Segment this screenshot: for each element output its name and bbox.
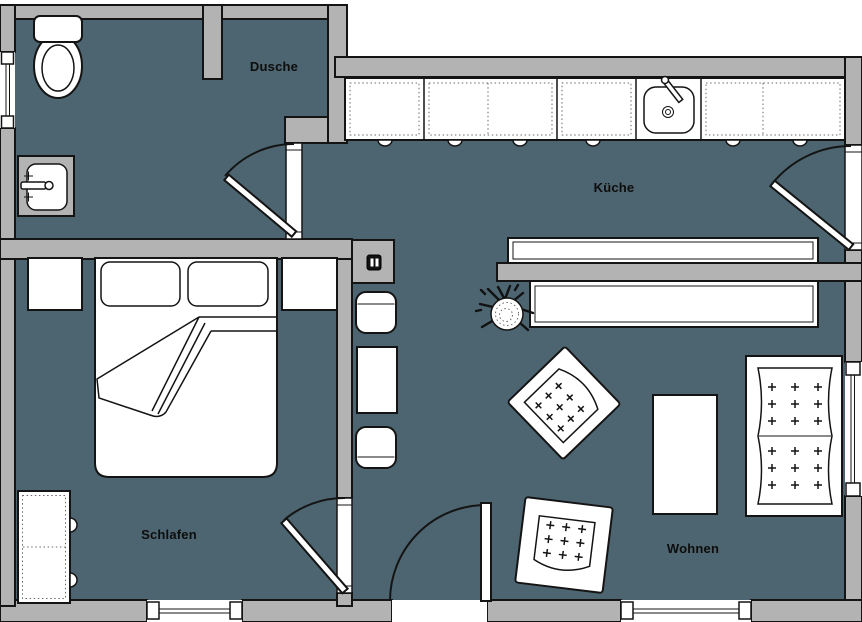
- wall-bedroom-top: [0, 239, 352, 259]
- room-label-schlafen: Schlafen: [141, 527, 197, 542]
- window-bottom-2: [621, 600, 751, 622]
- window-right: [845, 362, 862, 496]
- nightstand-left: [28, 258, 82, 310]
- window-jamb: [2, 116, 14, 128]
- faucet: [21, 182, 46, 189]
- wall-shower-partition: [203, 5, 222, 79]
- room-label-kueche: Küche: [594, 180, 635, 195]
- kitchen-counter: [508, 238, 818, 263]
- window-jamb: [739, 602, 751, 619]
- pillow: [188, 262, 268, 306]
- wall-bedroom-right-lower: [337, 593, 352, 606]
- window-jamb: [846, 362, 860, 375]
- floor-plan: Dusche Küche Schlafen Wohnen: [0, 0, 862, 622]
- window-bottom-1: [147, 600, 242, 622]
- sofa: [746, 356, 842, 516]
- wall-kitchen-top: [335, 57, 862, 77]
- sideboard: [530, 281, 818, 327]
- wall-bath-step: [285, 117, 332, 143]
- wall-bottom-4: [751, 600, 862, 622]
- wall-half-kitchen: [497, 263, 862, 281]
- wall-bottom-2: [242, 600, 392, 622]
- room-label-dusche: Dusche: [250, 59, 298, 74]
- coffee-table: [653, 395, 717, 514]
- window-jamb: [846, 483, 860, 496]
- kitchen-cabinet-run: [345, 77, 845, 147]
- nightstand-right: [282, 258, 337, 310]
- wall-bedroom-right-upper: [337, 259, 352, 498]
- wall-left-1: [0, 5, 15, 52]
- window-jamb: [621, 602, 633, 619]
- toilet: [34, 16, 82, 98]
- dining-chair-bottom: [356, 427, 396, 468]
- armchair-bottom: [515, 497, 613, 593]
- window-jamb: [2, 52, 14, 64]
- wall-left-2: [0, 128, 15, 606]
- window-jamb: [230, 602, 242, 619]
- dining-chair-top: [356, 292, 396, 333]
- washbasin: [18, 156, 74, 216]
- wall-right-1: [845, 57, 862, 145]
- double-bed: [95, 258, 277, 477]
- wall-bottom-3: [487, 600, 621, 622]
- room-label-wohnen: Wohnen: [667, 541, 719, 556]
- door-jamb: [845, 145, 862, 250]
- drain: [45, 182, 53, 190]
- pillow: [101, 262, 180, 306]
- wardrobe: [18, 491, 77, 603]
- window-left: [0, 52, 15, 128]
- window-jamb: [147, 602, 159, 619]
- floor-plan-drawing: Dusche Küche Schlafen Wohnen: [0, 0, 862, 622]
- dining-table: [357, 347, 397, 413]
- door-leaf: [481, 503, 491, 601]
- shaft-icon: [367, 255, 381, 270]
